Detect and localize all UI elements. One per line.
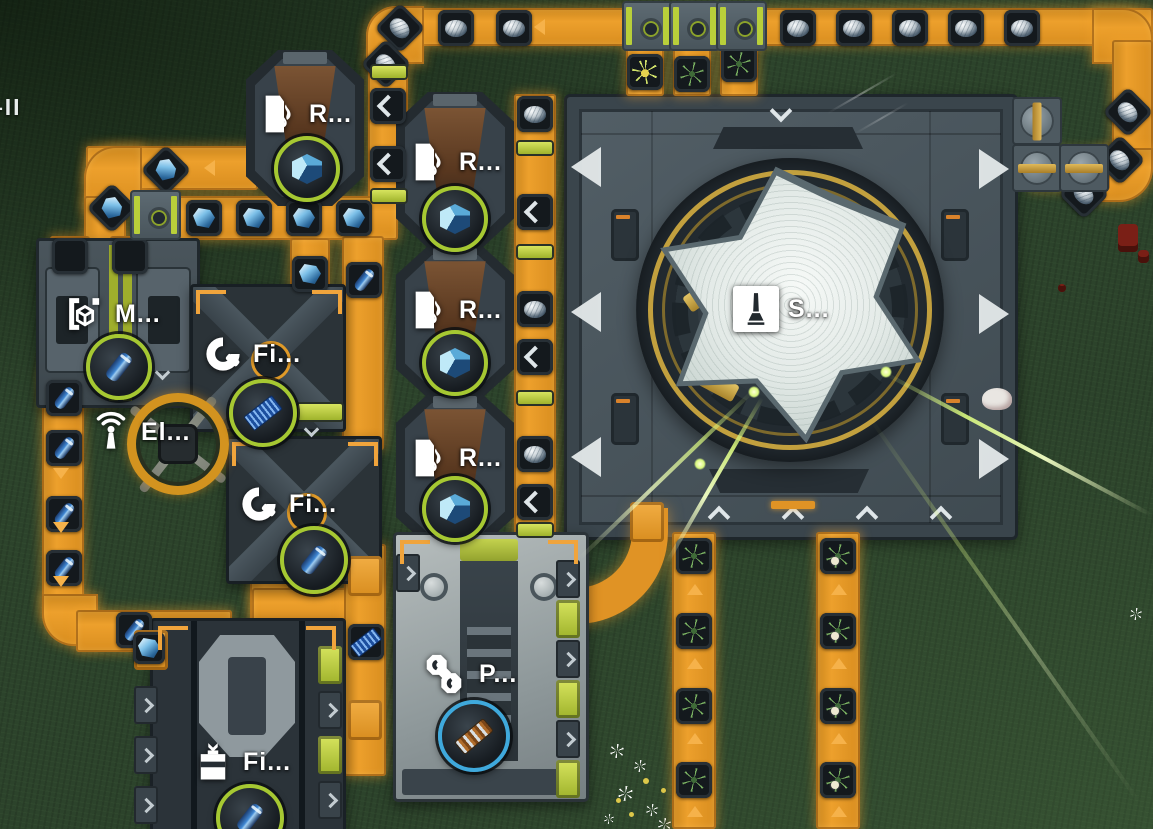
wild-flower-icon: [646, 804, 658, 816]
silver-ore-icon: [524, 446, 546, 463]
wild-flower-icon: [658, 818, 671, 829]
blue-circuit-icon: [243, 395, 282, 431]
herb-plant-icon: [682, 694, 706, 718]
belt-lime-rail: [372, 66, 406, 78]
blue-ore-cube-icon: [440, 494, 470, 524]
machine-label-text: P...: [479, 660, 517, 689]
machine-label-press: P...: [418, 648, 517, 700]
output-item-badge[interactable]: [86, 334, 152, 400]
belt-plate: [186, 200, 222, 236]
herb-plant-icon: [680, 62, 704, 86]
belt-plate: [820, 688, 856, 724]
press-port-lime: [556, 600, 580, 638]
output-item-badge[interactable]: [274, 136, 340, 202]
left-chevron-icon: [524, 346, 547, 369]
belt-plate: [820, 762, 856, 798]
blue-crystal-icon: [151, 155, 181, 185]
silver-ore-icon: [955, 20, 977, 37]
blue-capsule-icon: [52, 385, 75, 411]
belt-cell: [348, 700, 382, 740]
belt-plate: [438, 10, 474, 46]
silver-ore-icon: [524, 106, 546, 123]
belt-plate: [1004, 10, 1040, 46]
platform-socket: [611, 393, 639, 445]
belt-direction-arrow: [204, 160, 215, 176]
yellow-flower-dot: [661, 788, 666, 793]
container-box-icon: [192, 740, 234, 784]
belt-direction-arrow: [831, 658, 847, 669]
belt-plate: [780, 10, 816, 46]
belt-plate: [676, 688, 712, 724]
splitter-hub-icon: [640, 18, 662, 40]
corner-bracket-icon: [548, 540, 578, 564]
belt-plate: [286, 200, 322, 236]
belt-plate: [836, 10, 872, 46]
refinery-cap: [283, 52, 327, 64]
press-port: [556, 560, 580, 598]
belt-plate: [236, 200, 272, 236]
platform-west-port-icon: [571, 437, 601, 477]
splitter-hub-icon: [687, 18, 709, 40]
belt-lime-rail: [518, 246, 552, 258]
antenna-waves-icon: [90, 410, 132, 454]
press-port-lime: [556, 760, 580, 798]
belt-splitter[interactable]: [622, 1, 673, 51]
machine-label-refinery-1: R...: [258, 92, 352, 136]
laser-spark: [694, 458, 706, 470]
wild-flower-icon: [604, 814, 614, 824]
blue-crystal-icon: [97, 193, 127, 223]
belt-plate: [676, 538, 712, 574]
belt-direction-arrow: [831, 733, 847, 744]
machine-label-text: S...: [788, 295, 830, 324]
belt-cell: [348, 556, 382, 596]
belt-plate: [292, 256, 328, 292]
belt-plate: [517, 339, 553, 375]
corner-bracket-icon: [306, 626, 336, 650]
laser-spark: [748, 386, 760, 398]
belt-plate: [676, 762, 712, 798]
game-viewport: R... R... R... R... M... Fi... Fi... El.…: [0, 0, 1153, 829]
blue-capsule-icon: [52, 435, 75, 461]
output-item-badge[interactable]: [422, 476, 488, 542]
yellow-flower-icon: [632, 60, 658, 84]
rotary-grabber[interactable]: [1059, 144, 1109, 192]
flame-sheet-icon: [408, 288, 450, 332]
belt-cell: [630, 502, 664, 542]
output-item-badge[interactable]: [422, 186, 488, 252]
machine-label-shield: S...: [733, 286, 830, 332]
corner-bracket-icon: [196, 290, 226, 314]
machine-label-text: R...: [309, 100, 352, 129]
cube-brackets-icon: [64, 292, 106, 336]
platform-top-panel: [713, 127, 863, 149]
output-item-badge[interactable]: [229, 379, 297, 447]
silver-ore-icon: [843, 20, 865, 37]
c-wrench-icon: [202, 332, 244, 376]
belt-plate: [892, 10, 928, 46]
machine-label-refinery-2: R...: [408, 140, 502, 184]
belt-splitter[interactable]: [716, 1, 767, 51]
belt-lime-rail: [518, 392, 552, 404]
belt-plate: [346, 262, 382, 298]
belt-plate: [676, 613, 712, 649]
rotary-grabber[interactable]: [1012, 97, 1062, 145]
belt-plate: [517, 436, 553, 472]
blue-capsule-icon: [299, 544, 329, 576]
press-port: [556, 720, 580, 758]
laser-spark: [880, 366, 892, 378]
belt-direction-arrow: [687, 806, 703, 817]
platform-east-port-icon: [979, 294, 1009, 334]
filler-port: [318, 691, 342, 729]
belt-direction-arrow: [831, 584, 847, 595]
herb-plant-icon: [682, 619, 706, 643]
machine-label-text: Fi...: [289, 490, 337, 519]
blue-capsule-icon: [104, 351, 134, 383]
belt-plate: [517, 484, 553, 520]
machine-label-text: R...: [459, 444, 502, 473]
blue-ore-cube-icon: [292, 154, 322, 184]
belt-plate: [336, 200, 372, 236]
bulb-herb-icon: [826, 544, 850, 568]
white-creature: [982, 388, 1012, 410]
machine-label-refinery-4: R...: [408, 436, 502, 480]
obelisk-icon: [733, 286, 779, 332]
c-wrench-icon: [238, 482, 280, 526]
hud-edge-label: –II: [0, 94, 22, 121]
platform-west-port-icon: [571, 292, 601, 332]
belt-splitter[interactable]: [669, 1, 720, 51]
belt-plate: [496, 10, 532, 46]
left-chevron-icon: [524, 491, 547, 514]
belt-plate: [112, 238, 148, 274]
press-port: [556, 640, 580, 678]
silver-ore-icon: [787, 20, 809, 37]
herb-plant-icon: [727, 52, 751, 76]
wild-flower-icon: [1130, 608, 1142, 620]
platform-socket: [941, 393, 969, 445]
corner-bracket-icon: [312, 290, 342, 314]
bulb-herb-icon: [826, 768, 850, 792]
flame-sheet-icon: [258, 92, 300, 136]
silver-ore-icon: [386, 14, 414, 42]
corner-bracket-icon: [400, 540, 430, 564]
silver-ore-icon: [1011, 20, 1033, 37]
press-base: [402, 769, 580, 795]
red-robot-figure: [1138, 250, 1149, 263]
belt-plate: [370, 88, 406, 124]
belt-direction-arrow: [687, 658, 703, 669]
yellow-flower-dot: [616, 798, 621, 803]
machine-label-fitter-2: Fi...: [238, 482, 337, 526]
belt-plate: [52, 238, 88, 274]
rotary-arm-icon: [1018, 164, 1056, 173]
copper-rail-icon: [454, 717, 494, 754]
output-item-badge[interactable]: [438, 700, 510, 772]
fitter-out-chevron-icon: [306, 424, 317, 435]
filler-port: [134, 686, 158, 724]
machine-label-refinery-3: R...: [408, 288, 502, 332]
platform-west-port-icon: [571, 147, 601, 187]
platform-socket: [941, 209, 969, 261]
blue-crystal-icon: [243, 208, 265, 228]
silver-ore-icon: [1114, 98, 1142, 126]
filler-port: [134, 736, 158, 774]
blue-capsule-icon: [235, 802, 265, 829]
belt-plate: [721, 46, 757, 82]
blue-crystal-icon: [343, 208, 365, 228]
blue-ore-cube-icon: [440, 204, 470, 234]
linked-joints-icon: [418, 648, 470, 700]
filler-port: [134, 786, 158, 824]
belt-lime-rail: [518, 524, 552, 536]
belt-plate: [46, 430, 82, 466]
press-joint-icon: [530, 573, 558, 601]
silver-ore-icon: [503, 20, 525, 37]
press-vent: [460, 539, 518, 561]
left-chevron-icon: [524, 201, 547, 224]
red-item-drop: [1058, 284, 1066, 292]
blue-crystal-icon: [299, 264, 321, 284]
machine-label-filler: Fi...: [192, 740, 291, 784]
machine-label-text: Fi...: [243, 748, 291, 777]
bulb-herb-icon: [826, 619, 850, 643]
filler-port: [318, 781, 342, 819]
belt-direction-arrow: [687, 733, 703, 744]
platform-east-port-icon: [979, 439, 1009, 479]
silver-ore-icon: [524, 301, 546, 318]
platform-bottom-chevron-icon: [859, 509, 875, 525]
platform-bottom-chevron-icon: [711, 509, 727, 525]
press-joint-icon: [420, 573, 448, 601]
output-item-badge[interactable]: [280, 526, 348, 594]
silver-ore-icon: [1106, 146, 1134, 174]
machine-label-electric: El...: [90, 410, 190, 454]
left-chevron-icon: [377, 153, 400, 176]
belt-direction-arrow: [831, 806, 847, 817]
herb-plant-icon: [682, 768, 706, 792]
rotary-arm-icon: [1065, 164, 1103, 173]
belt-lime-rail: [518, 142, 552, 154]
splitter-hub-icon: [148, 207, 170, 229]
platform-notch: [771, 501, 815, 509]
belt-plate: [517, 96, 553, 132]
blue-capsule-icon: [352, 267, 375, 293]
left-chevron-icon: [377, 95, 400, 118]
belt-plate: [820, 613, 856, 649]
platform-bottom-chevron-icon: [785, 509, 801, 525]
blue-circuit-icon: [350, 627, 383, 657]
belt-plate: [517, 194, 553, 230]
belt-splitter[interactable]: [130, 190, 181, 240]
filler-port-lime: [318, 736, 342, 774]
silver-ore-icon: [445, 20, 467, 37]
blue-crystal-icon: [293, 208, 315, 228]
bulb-herb-icon: [826, 694, 850, 718]
machine-label-text: Fi...: [253, 340, 301, 369]
belt-plate: [46, 380, 82, 416]
machine-label-text: El...: [141, 418, 190, 447]
blue-ore-cube-icon: [440, 348, 470, 378]
belt-direction-arrow: [53, 576, 69, 587]
splitter-hub-icon: [734, 18, 756, 40]
flame-sheet-icon: [408, 436, 450, 480]
platform-socket: [611, 209, 639, 261]
belt-lime-rail: [372, 190, 406, 202]
blue-crystal-icon: [138, 638, 160, 658]
wild-flower-icon: [634, 760, 646, 772]
corner-bracket-icon: [348, 442, 378, 466]
belt-plate: [820, 538, 856, 574]
machine-label-fitter-1: Fi...: [202, 332, 301, 376]
silver-ore-icon: [899, 20, 921, 37]
corner-bracket-icon: [158, 626, 188, 650]
fitter-port-lime: [298, 404, 342, 420]
yellow-flower-dot: [643, 778, 649, 784]
machine-label-text: R...: [459, 296, 502, 325]
herb-plant-icon: [682, 544, 706, 568]
press-port-lime: [556, 680, 580, 718]
belt-plate: [348, 624, 384, 660]
machine-label-text: M...: [115, 300, 161, 329]
belt-plate: [948, 10, 984, 46]
belt-direction-arrow: [53, 468, 69, 479]
molder-out-chevron-icon: [157, 367, 168, 378]
wild-flower-icon: [610, 744, 624, 758]
belt-plate: [674, 56, 710, 92]
belt-plate: [517, 291, 553, 327]
platform-bottom-panel: [709, 469, 869, 493]
flame-sheet-icon: [408, 140, 450, 184]
rotary-grabber[interactable]: [1012, 144, 1062, 192]
refinery-cap: [433, 94, 477, 106]
belt-plate: [627, 54, 663, 90]
yellow-flower-dot: [629, 812, 634, 817]
blue-crystal-icon: [193, 208, 215, 228]
machine-label-text: R...: [459, 148, 502, 177]
refinery-cap: [433, 396, 477, 408]
red-robot-figure: [1118, 224, 1138, 252]
filler-port-lime: [318, 646, 342, 684]
platform-top-chevron-icon: [773, 103, 789, 119]
rotary-arm-icon: [1033, 103, 1042, 141]
belt-direction-arrow: [687, 584, 703, 595]
belt-direction-arrow: [53, 522, 69, 533]
output-item-badge[interactable]: [422, 330, 488, 396]
machine-label-molder: M...: [64, 292, 161, 336]
platform-east-port-icon: [979, 149, 1009, 189]
belt-plate: [370, 146, 406, 182]
belt-direction-arrow: [534, 19, 545, 35]
